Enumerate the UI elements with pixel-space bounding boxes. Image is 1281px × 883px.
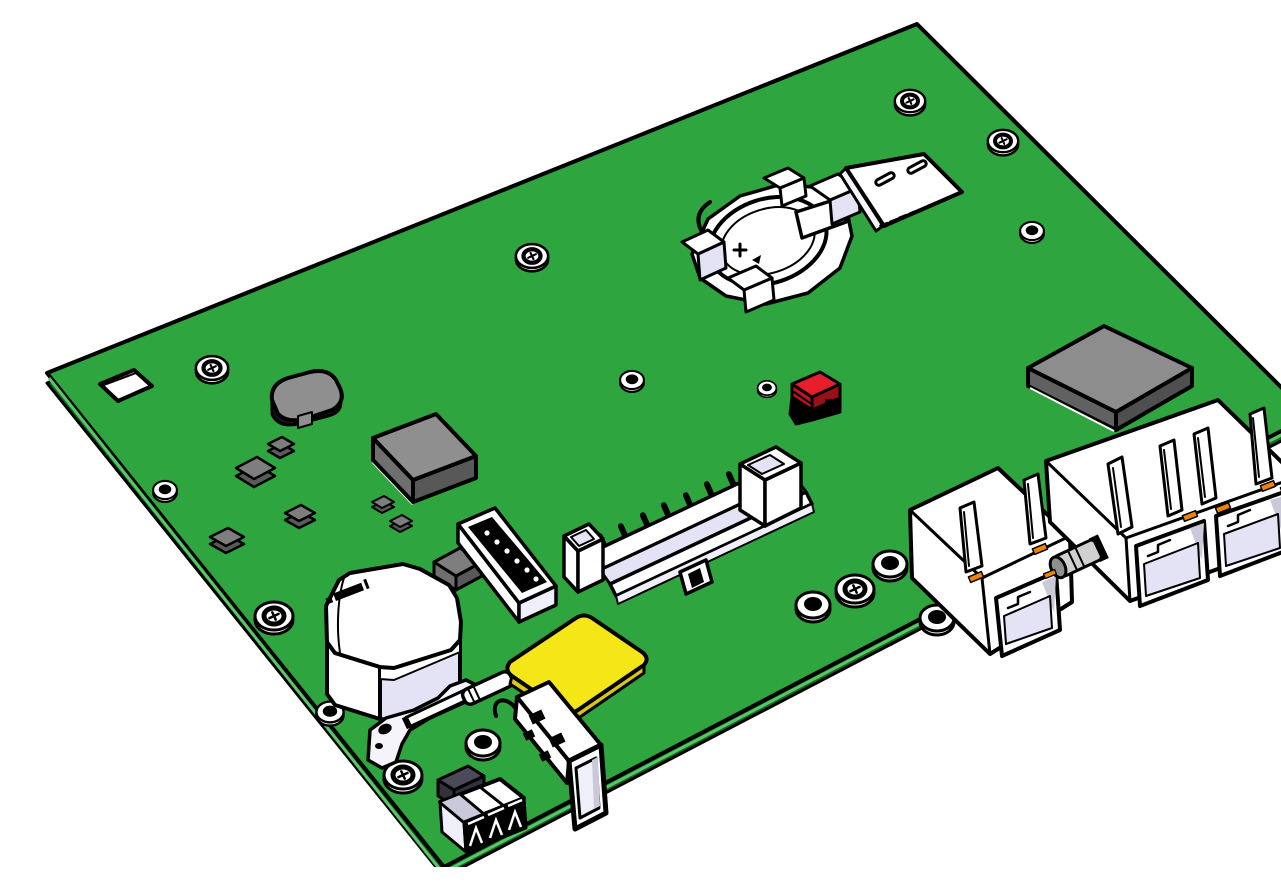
inductor-window bbox=[298, 412, 312, 428]
pcb-3d-render: Isometric 3D CAD rendering of a green pr… bbox=[40, 16, 1281, 867]
idc-end-block-left bbox=[564, 524, 603, 592]
bracket-hole bbox=[375, 743, 383, 749]
relay-top bbox=[326, 564, 461, 668]
render-canvas bbox=[40, 16, 1281, 867]
idc-end-block-right bbox=[740, 447, 801, 526]
jumper-pin-hole bbox=[826, 400, 836, 410]
